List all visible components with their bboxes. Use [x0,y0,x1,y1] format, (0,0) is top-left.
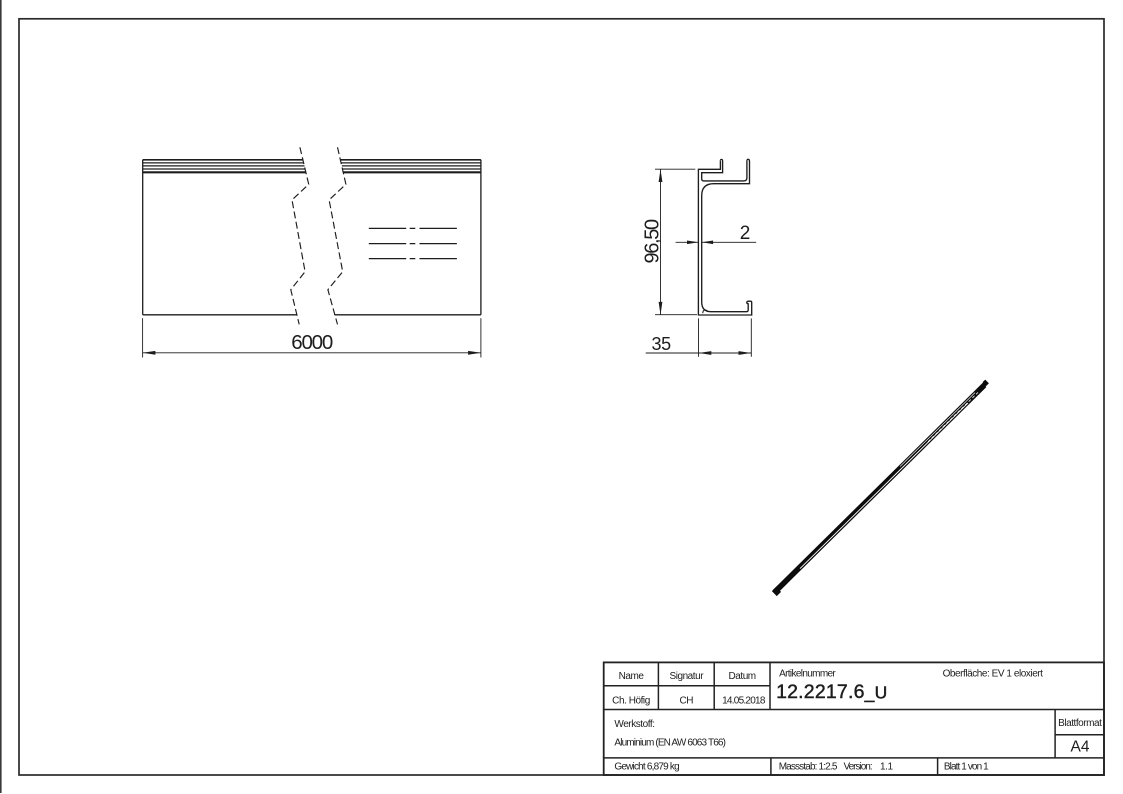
svg-text:Version:: Version: [844,762,872,773]
svg-text:12.2217.6_U: 12.2217.6_U [776,681,887,704]
svg-text:35: 35 [652,334,672,354]
svg-text:Datum: Datum [728,671,755,682]
svg-text:Oberfläche: EV 1 eloxiert: Oberfläche: EV 1 eloxiert [943,669,1044,680]
svg-text:Blatt 1 von 1: Blatt 1 von 1 [944,762,989,773]
svg-text:Gewicht 6,879 kg: Gewicht 6,879 kg [614,762,679,773]
svg-text:Werkstoff:: Werkstoff: [614,719,654,730]
svg-text:14.05.2018: 14.05.2018 [722,695,766,706]
svg-text:2: 2 [740,223,751,244]
svg-text:Artikelnummer: Artikelnummer [779,669,836,680]
svg-text:96,50: 96,50 [641,219,663,264]
svg-text:CH: CH [680,695,694,706]
svg-text:Ch. Höfig: Ch. Höfig [612,695,650,706]
svg-text:Signatur: Signatur [669,671,704,682]
svg-text:A4: A4 [1071,739,1090,756]
svg-text:1.1: 1.1 [880,762,893,773]
svg-text:Aluminium (EN AW 6063 T66): Aluminium (EN AW 6063 T66) [614,737,725,748]
svg-text:Massstab: 1:2.5: Massstab: 1:2.5 [779,762,838,773]
svg-text:Name: Name [619,671,645,682]
svg-text:6000: 6000 [291,331,333,354]
svg-text:Blattformat: Blattformat [1058,718,1102,729]
